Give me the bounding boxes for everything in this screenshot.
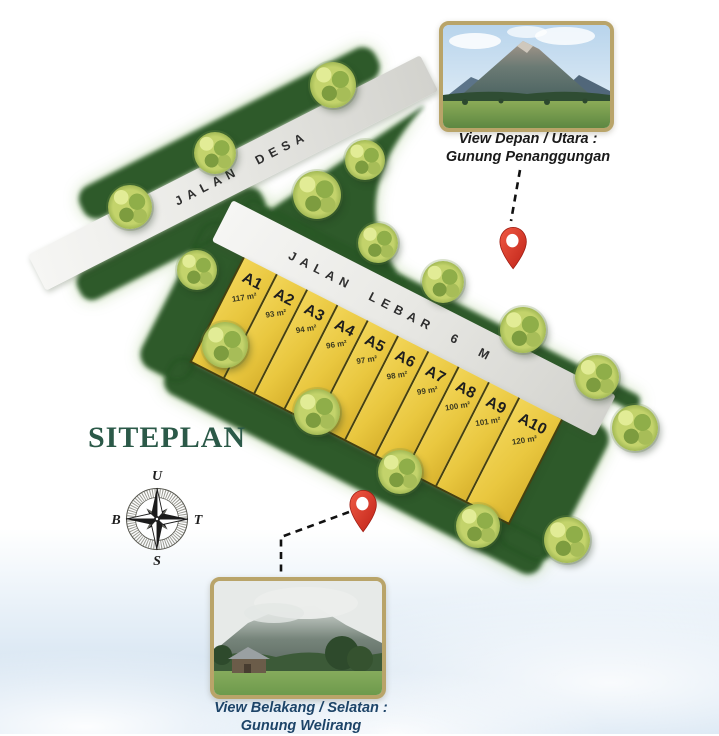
caption-back-line2: Gunung Welirang bbox=[196, 718, 406, 736]
caption-back-view: View Belakang / Selatan : Gunung Weliran… bbox=[196, 700, 406, 736]
location-pin-front-icon bbox=[500, 227, 526, 268]
compass-rose-icon: U T S B bbox=[107, 467, 207, 567]
connector-front-view bbox=[511, 170, 520, 221]
compass-south-label: S bbox=[153, 554, 161, 567]
caption-front-line2: Gunung Penanggungan bbox=[430, 149, 626, 167]
caption-front-view: View Depan / Utara : Gunung Penanggungan bbox=[430, 131, 626, 167]
caption-front-line1: View Depan / Utara : bbox=[430, 131, 626, 149]
siteplan-page: { "title": "SITEPLAN", "compass": { "nor… bbox=[0, 0, 719, 734]
compass-north-label: U bbox=[152, 469, 163, 484]
location-pin-back-icon bbox=[350, 490, 376, 531]
compass-east-label: T bbox=[194, 513, 204, 528]
mountain-photo-back bbox=[214, 581, 382, 695]
photo-front-view bbox=[439, 21, 614, 132]
photo-back-view bbox=[210, 577, 386, 699]
page-title: SITEPLAN bbox=[88, 421, 246, 455]
connector-back-view bbox=[281, 512, 349, 575]
compass-west-label: B bbox=[110, 513, 120, 528]
mountain-photo-front bbox=[443, 25, 610, 128]
caption-back-line1: View Belakang / Selatan : bbox=[196, 700, 406, 718]
